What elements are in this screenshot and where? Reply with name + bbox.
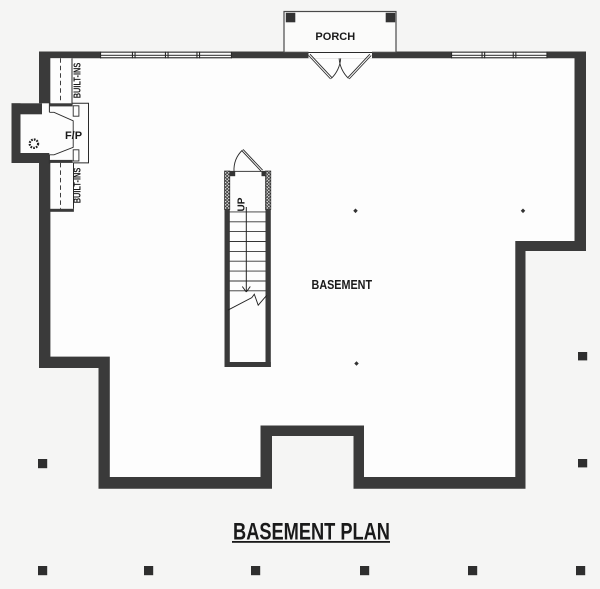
svg-text:UP: UP [236, 197, 247, 211]
svg-text:PORCH: PORCH [315, 31, 355, 43]
svg-text:F/P: F/P [65, 130, 82, 142]
svg-text:BASEMENT: BASEMENT [312, 277, 373, 292]
svg-text:BUILT-INS: BUILT-INS [71, 63, 82, 99]
svg-text:BUILT-INS: BUILT-INS [71, 168, 82, 204]
